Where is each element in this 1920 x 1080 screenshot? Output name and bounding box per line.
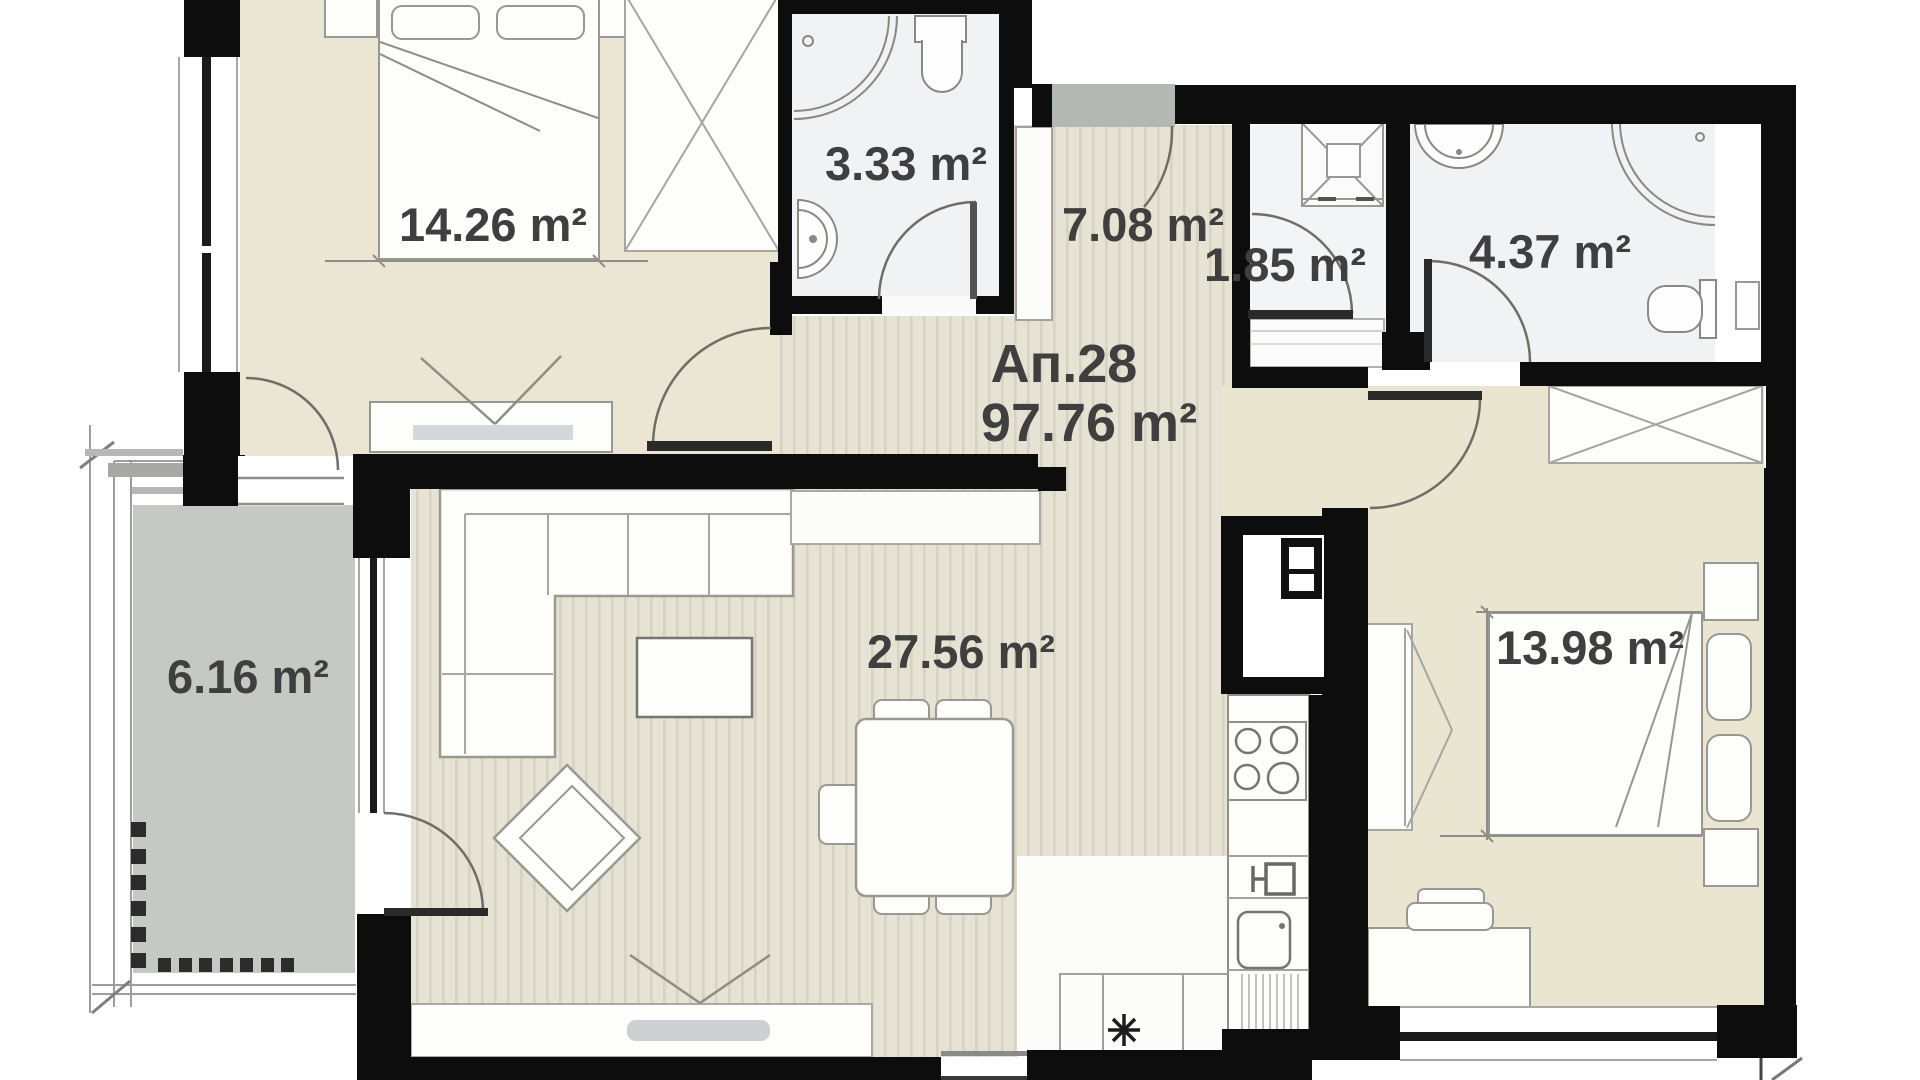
svg-text:6.16 m²: 6.16 m² [167, 650, 329, 703]
svg-text:13.98 m²: 13.98 m² [1496, 621, 1684, 674]
svg-text:27.56 m²: 27.56 m² [867, 625, 1055, 678]
svg-text:7.08 m²: 7.08 m² [1062, 198, 1224, 251]
svg-text:Ап.28: Ап.28 [991, 334, 1138, 394]
svg-text:1.85 m²: 1.85 m² [1204, 238, 1366, 291]
svg-text:4.37 m²: 4.37 m² [1469, 225, 1631, 278]
svg-text:97.76 m²: 97.76 m² [981, 393, 1197, 453]
svg-text:14.26 m²: 14.26 m² [399, 198, 587, 251]
svg-text:3.33 m²: 3.33 m² [825, 137, 987, 190]
